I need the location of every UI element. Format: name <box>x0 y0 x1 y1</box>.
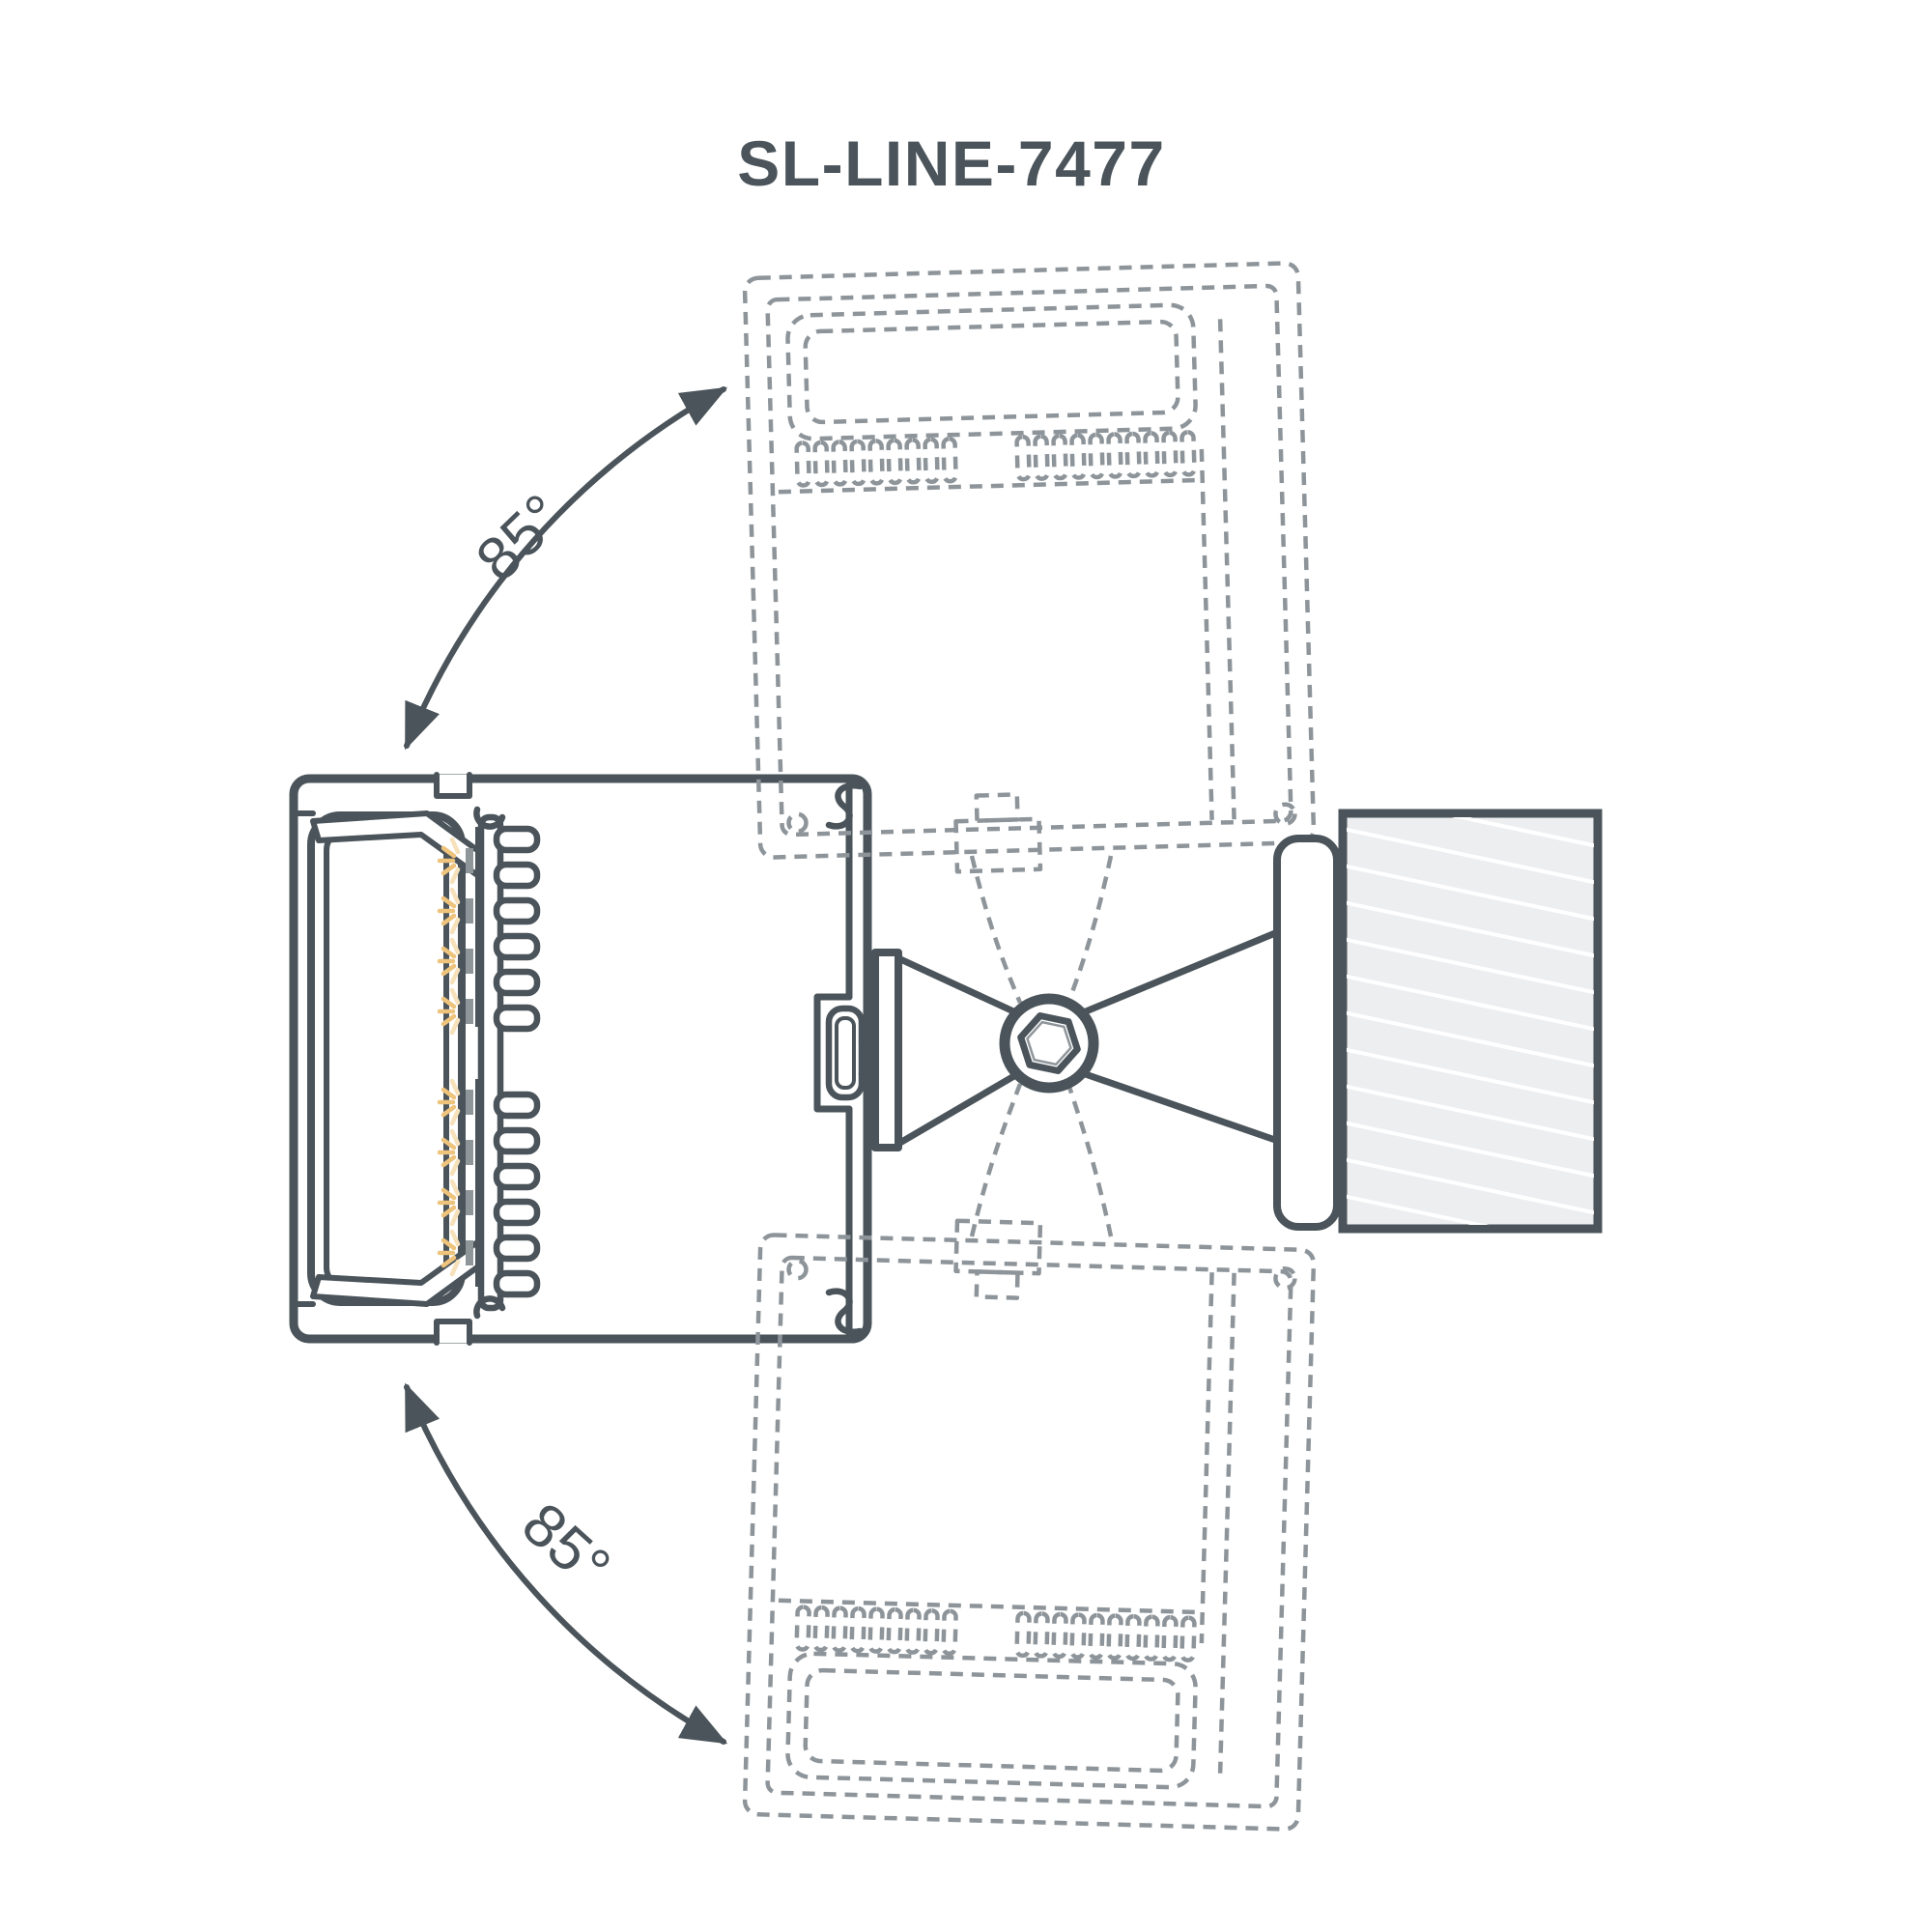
top-clip-notch <box>437 775 469 796</box>
technical-drawing: SL-LINE-7477 <box>0 0 1932 1932</box>
hex-screw-icon <box>1005 999 1094 1088</box>
heatsink <box>476 810 537 1316</box>
bracket-stub <box>875 952 898 1148</box>
wall-section <box>1343 755 1598 1287</box>
angle-label-upper: 85° <box>464 482 577 595</box>
bottom-clip-notch <box>437 1321 469 1343</box>
rotation-arc-upper <box>407 389 724 746</box>
technical-drawing-page: SL-LINE-7477 <box>0 0 1932 1932</box>
ghost-fins-bottom <box>797 1606 1195 1660</box>
corner-clip-bottom-icon <box>829 1292 860 1332</box>
wall-plate <box>1277 838 1337 1227</box>
ghost-fins-top <box>797 432 1195 485</box>
ghost-fixture-bottom <box>745 1215 1315 1830</box>
luminaire-body <box>294 775 867 1343</box>
corner-clip-top-icon <box>829 785 860 826</box>
ghost-fixture-top <box>745 263 1315 877</box>
page-title: SL-LINE-7477 <box>737 128 1165 199</box>
